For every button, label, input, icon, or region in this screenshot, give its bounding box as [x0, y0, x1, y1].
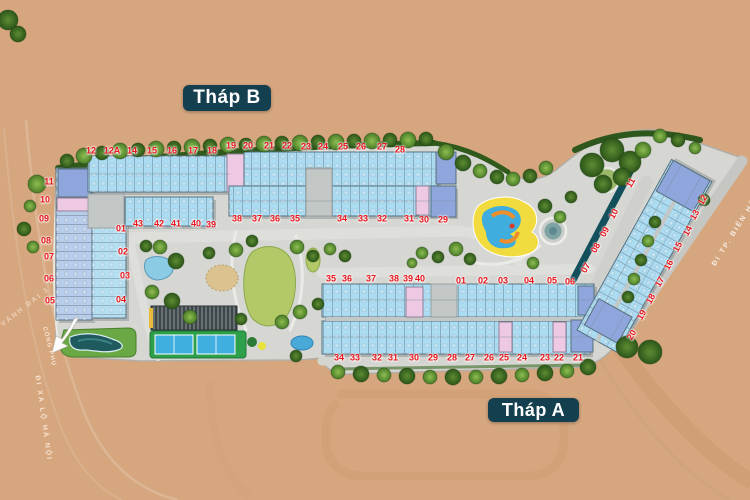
unit-label[interactable]: 16	[167, 147, 177, 156]
unit-label[interactable]: 19	[226, 142, 236, 151]
unit-label[interactable]: 09	[39, 215, 49, 224]
unit-label[interactable]: 29	[438, 216, 448, 225]
unit-label[interactable]: 26	[356, 143, 366, 152]
unit-label[interactable]: 40	[415, 275, 425, 284]
unit-label[interactable]: 03	[498, 277, 508, 286]
unit-label[interactable]: 39	[206, 221, 216, 230]
unit-label[interactable]: 37	[252, 215, 262, 224]
unit-label[interactable]: 25	[499, 354, 509, 363]
unit-label[interactable]: 36	[342, 275, 352, 284]
unit-label[interactable]: 24	[517, 354, 527, 363]
unit-label[interactable]: 14	[127, 147, 137, 156]
unit-label[interactable]: 11	[44, 178, 54, 187]
clubhouse-entry	[149, 308, 153, 328]
unit-label[interactable]: 18	[207, 147, 217, 156]
unit-label[interactable]: 22	[282, 142, 292, 151]
unit-label[interactable]: 06	[565, 278, 575, 287]
unit-label[interactable]: 15	[147, 147, 157, 156]
unit-label[interactable]: 27	[377, 143, 387, 152]
unit-label[interactable]: 40	[191, 220, 201, 229]
unit-label[interactable]: 22	[554, 354, 564, 363]
tower-b-badge: Tháp B	[183, 85, 271, 111]
unit-label[interactable]: 12	[86, 147, 96, 156]
unit-label[interactable]: 37	[366, 275, 376, 284]
unit-label[interactable]: 27	[465, 354, 475, 363]
unit-label[interactable]: 30	[419, 216, 429, 225]
unit-label[interactable]: 02	[118, 248, 128, 257]
unit-label[interactable]: 29	[428, 354, 438, 363]
unit-label[interactable]: 43	[133, 220, 143, 229]
unit-label[interactable]: 28	[395, 146, 405, 155]
unit-label[interactable]: 30	[409, 354, 419, 363]
unit-label[interactable]: 23	[301, 143, 311, 152]
tower-a-badge: Tháp A	[488, 398, 579, 422]
unit-label[interactable]: 05	[45, 297, 55, 306]
master-plan: Tháp B Tháp A ĐI XA LỘ HÀ NỘI VÀNH ĐAI 3…	[0, 0, 750, 500]
unit-label[interactable]: 07	[44, 253, 54, 262]
unit-label[interactable]: 04	[116, 296, 126, 305]
unit-label[interactable]: 33	[350, 354, 360, 363]
unit-label[interactable]: 20	[243, 142, 253, 151]
unit-label[interactable]: 08	[41, 237, 51, 246]
unit-label[interactable]: 01	[456, 277, 466, 286]
unit-label[interactable]: 03	[120, 272, 130, 281]
unit-label[interactable]: 35	[290, 215, 300, 224]
unit-label[interactable]: 38	[232, 215, 242, 224]
unit-label[interactable]: 33	[358, 215, 368, 224]
unit-label[interactable]: 24	[318, 143, 328, 152]
unit-label[interactable]: 05	[547, 277, 557, 286]
central-lawn	[244, 247, 296, 326]
unit-label[interactable]: 39	[403, 275, 413, 284]
site-plan-art	[0, 0, 750, 500]
unit-label[interactable]: 31	[404, 215, 414, 224]
unit-label[interactable]: 31	[388, 354, 398, 363]
unit-label[interactable]: 10	[40, 196, 50, 205]
unit-label[interactable]: 26	[484, 354, 494, 363]
unit-label[interactable]: 02	[478, 277, 488, 286]
unit-label[interactable]: 04	[524, 277, 534, 286]
unit-label[interactable]: 35	[326, 275, 336, 284]
unit-label[interactable]: 17	[188, 147, 198, 156]
unit-label[interactable]: 36	[270, 215, 280, 224]
unit-label[interactable]: 21	[573, 354, 583, 363]
unit-label[interactable]: 38	[389, 275, 399, 284]
unit-label[interactable]: 12A	[104, 147, 121, 156]
sand-pit	[206, 265, 238, 291]
unit-label[interactable]: 32	[372, 354, 382, 363]
unit-label[interactable]: 28	[447, 354, 457, 363]
unit-label[interactable]: 01	[116, 225, 126, 234]
small-pond	[291, 336, 313, 350]
unit-label[interactable]: 34	[334, 354, 344, 363]
unit-label[interactable]: 25	[338, 143, 348, 152]
unit-label[interactable]: 06	[44, 275, 54, 284]
unit-label[interactable]: 42	[154, 220, 164, 229]
unit-label[interactable]: 23	[540, 354, 550, 363]
unit-label[interactable]: 34	[337, 215, 347, 224]
unit-label[interactable]: 32	[377, 215, 387, 224]
unit-label[interactable]: 41	[171, 220, 181, 229]
lap-pool	[60, 328, 136, 357]
unit-label[interactable]: 21	[264, 142, 274, 151]
